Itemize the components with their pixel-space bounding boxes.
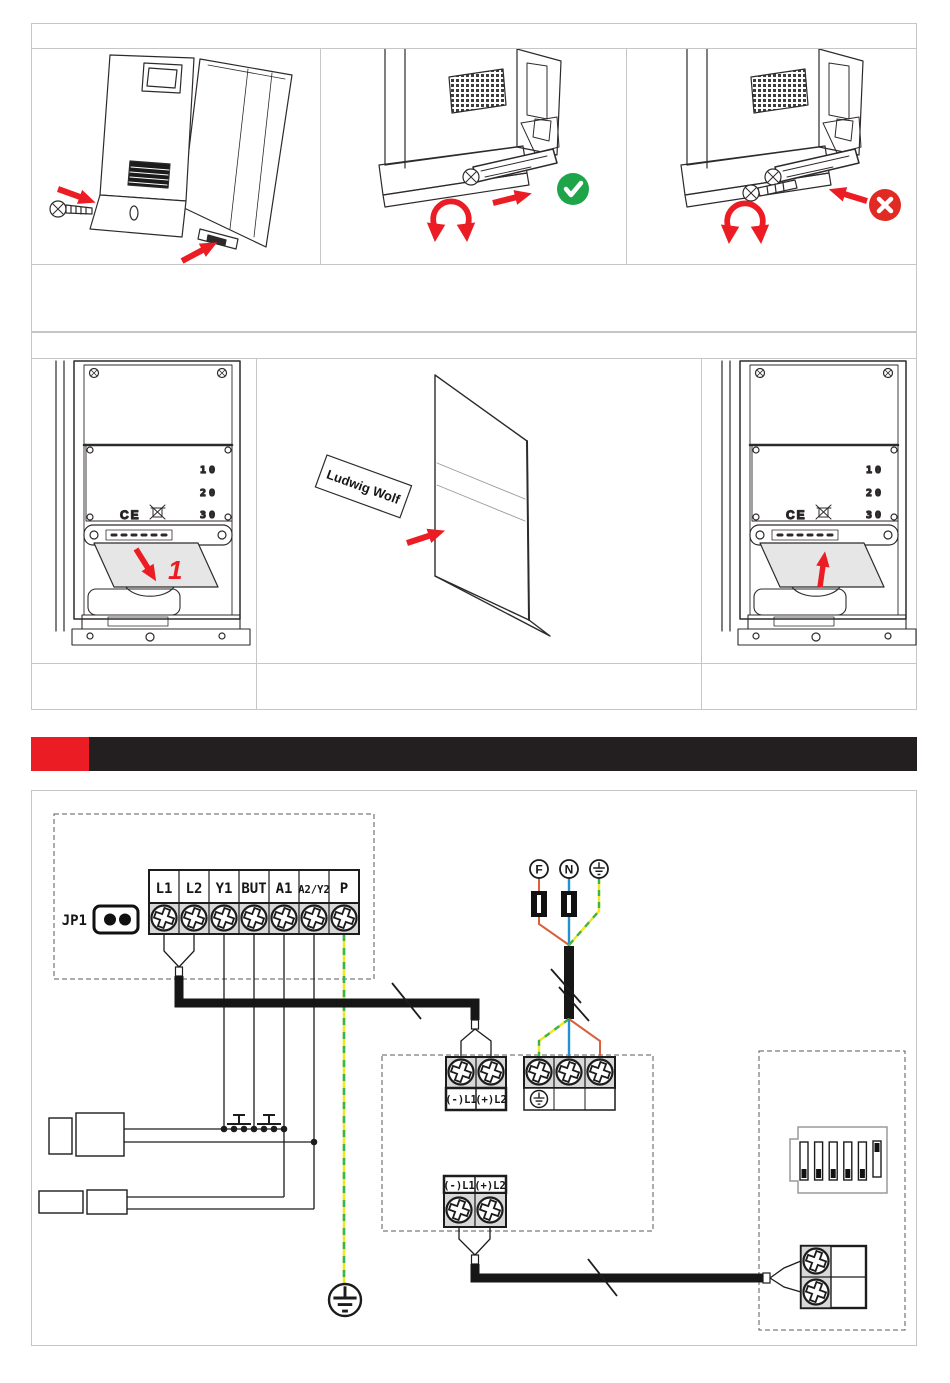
- terminal-label: L1: [156, 881, 173, 897]
- illustration-screw-wrong: [627, 49, 918, 265]
- rotate-arrow-icon: [721, 203, 769, 244]
- illustration-remove-backplate: [32, 49, 320, 265]
- device-label-patch: [128, 161, 170, 188]
- terminal-label: A1: [276, 881, 293, 897]
- illustration-screw-correct: [321, 49, 626, 265]
- dip-switch-bank: [790, 1127, 887, 1193]
- screw-terminal-icon: [182, 906, 207, 931]
- earth-symbol: [329, 1284, 361, 1316]
- fuse-icon: [531, 891, 577, 917]
- error-icon: [869, 189, 901, 221]
- section-accent-square: [31, 737, 89, 771]
- cable-ferrule: [763, 1273, 770, 1283]
- slide-latch: [463, 149, 557, 185]
- table2-caption-row: [31, 663, 917, 710]
- ce-mark: CE: [120, 508, 141, 522]
- jumper-label: JP1: [62, 913, 87, 929]
- table2-picture-row: 10 20 30 CE 1: [31, 358, 917, 664]
- jumper-jp1: JP1: [62, 906, 138, 933]
- table1-header-strip: [31, 23, 917, 49]
- cell-divider: [256, 664, 257, 709]
- card-slot: [84, 525, 232, 545]
- wiring-diagram: F N L1 L2 Y1 BUT A1 A2/Y2 P JP1: [32, 791, 916, 1345]
- manual-page: { "colors": { "accent_red": "#ec1c24", "…: [0, 0, 950, 1383]
- screw-terminal-icon: [272, 906, 297, 931]
- weee-bin-icon: [150, 505, 165, 521]
- illustration-card-remove: 10 20 30 CE 1: [32, 359, 256, 663]
- bus-terminal-block-lower: (-)L1 (+)L2: [443, 1176, 506, 1227]
- screw-terminal-icon: [302, 906, 327, 931]
- terminal-label: L2: [186, 881, 203, 897]
- table1-picture-row: [31, 48, 917, 265]
- rotate-arrow-icon: [427, 201, 475, 242]
- terminal-label: P: [340, 881, 348, 897]
- red-arrow-icon: [405, 524, 448, 551]
- cable-ferrule: [176, 967, 183, 976]
- table2-header-strip: [31, 332, 917, 359]
- table1-caption-row: [31, 264, 917, 332]
- screw-terminal-icon: [332, 906, 357, 931]
- mains-terminal-block: [524, 1057, 615, 1110]
- bus-terminal-label: (+)L2: [474, 1180, 506, 1192]
- power-supply: F N: [530, 860, 608, 1057]
- bus-terminal-block-upper: (-)L1 (+)L2: [445, 1057, 507, 1110]
- screw-terminal-icon: [212, 906, 237, 931]
- screw-icon: [50, 201, 92, 217]
- wiring-diagram-panel: F N L1 L2 Y1 BUT A1 A2/Y2 P JP1: [31, 790, 917, 1346]
- scale-mark-30: 30: [200, 510, 218, 521]
- bus-terminal-label: (-)L1: [445, 1094, 477, 1106]
- illustration-card-insert: [702, 359, 918, 663]
- screw-terminal-icon: [152, 906, 177, 931]
- phase-label: F: [535, 863, 542, 877]
- screw-terminal-icon: [242, 906, 267, 931]
- name-strip: Ludwig Wolf: [315, 455, 411, 518]
- vent-grille: [449, 69, 506, 113]
- cable-ferrule: [472, 1020, 479, 1029]
- remote-terminal-block: [801, 1246, 866, 1308]
- success-icon: [557, 173, 589, 205]
- terminal-label: A2/Y2: [298, 884, 330, 896]
- cell-divider: [701, 664, 702, 709]
- terminal-label: Y1: [216, 881, 233, 897]
- screw-icon: [90, 369, 227, 378]
- cable-ferrule: [472, 1255, 479, 1264]
- terminal-label: BUT: [241, 881, 266, 897]
- controller-terminal-block: L1 L2 Y1 BUT A1 A2/Y2 P: [149, 870, 359, 934]
- illustration-nameplate: Ludwig Wolf: [257, 359, 701, 663]
- remote-cable: [475, 1264, 763, 1278]
- scale-mark-10: 10: [200, 465, 218, 476]
- bus-terminal-label: (-)L1: [443, 1180, 475, 1192]
- neutral-label: N: [565, 863, 574, 877]
- section-header-bar: [31, 737, 917, 771]
- bus-terminal-label: (+)L2: [475, 1094, 507, 1106]
- scale-mark-20: 20: [200, 488, 218, 499]
- red-arrow-icon: [827, 182, 870, 208]
- step-number: 1: [168, 555, 182, 585]
